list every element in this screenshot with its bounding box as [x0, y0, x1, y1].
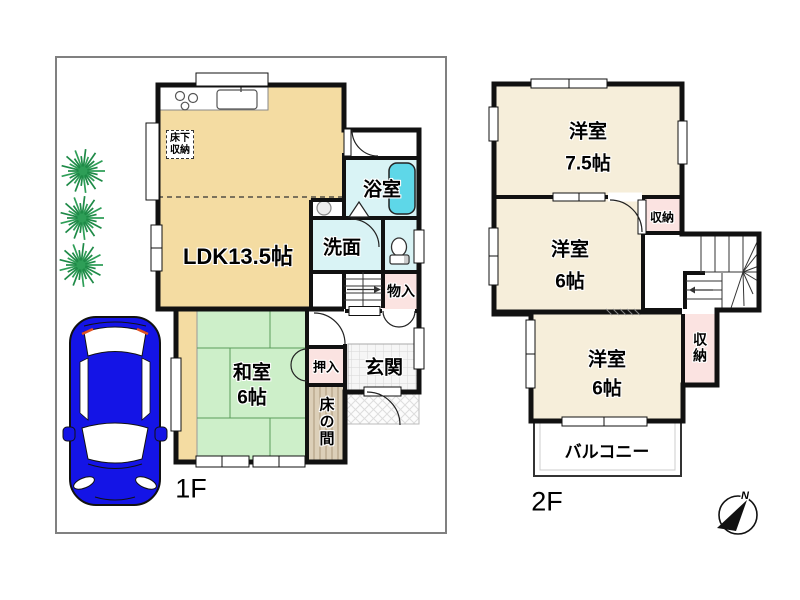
north-label: N	[741, 490, 749, 502]
shuno-btm-label: 収納	[690, 332, 710, 364]
washitsu-label-1: 和室	[233, 358, 271, 385]
entrance-label: 玄関	[365, 353, 403, 380]
yoshitsu6btm-label-1: 洋室	[588, 345, 626, 372]
washroom-label: 洗面	[323, 233, 361, 260]
yoshitsu75-label-2: 7.5帖	[565, 149, 610, 176]
car-icon	[63, 317, 167, 505]
yoshitsu75-label-1: 洋室	[569, 117, 607, 144]
kitchen-counter	[159, 84, 268, 110]
yoshitsu6btm-label-2: 6帖	[592, 374, 622, 401]
oshiire-label: 押入	[313, 357, 339, 376]
balcony-label: バルコニー	[565, 438, 650, 463]
shuno-mid-label: 収納	[650, 209, 674, 226]
washitsu-label-2: 6帖	[237, 383, 267, 410]
floor2-label: 2F	[531, 487, 563, 518]
bathroom-label: 浴室	[363, 175, 401, 202]
floor1-label: 1F	[175, 474, 207, 505]
yoshitsu6mid-label-2: 6帖	[555, 267, 585, 294]
storage-label: 物入	[387, 281, 415, 301]
underfloor-storage-label: 床下 収納	[166, 130, 194, 159]
yoshitsu6mid-label-1: 洋室	[551, 235, 589, 262]
compass-icon	[717, 496, 757, 534]
floorplan-page: 床下 収納 LDK13.5帖 浴室 洗面 物入 和室 6帖 押入 床の間 玄関 …	[0, 0, 800, 600]
ldk-label: LDK13.5帖	[183, 239, 293, 271]
house-2f	[489, 79, 759, 476]
tokonoma-label: 床の間	[316, 397, 337, 448]
entrance-porch	[347, 393, 419, 424]
